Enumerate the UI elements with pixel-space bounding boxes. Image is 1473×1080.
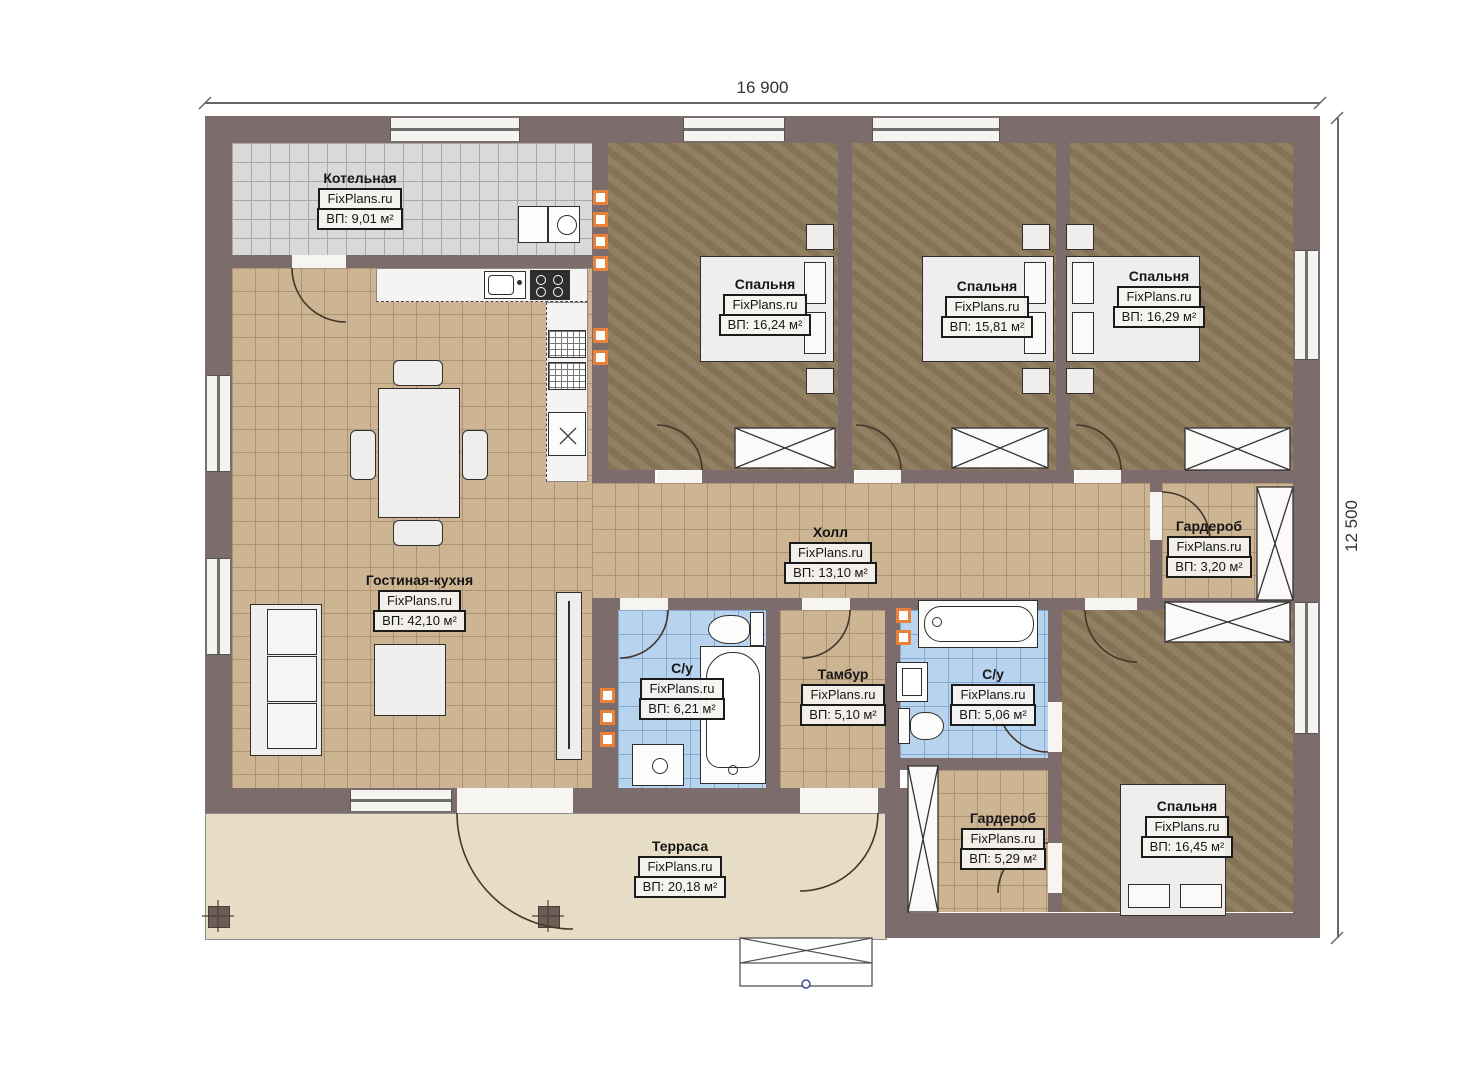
- watermark: FixPlans.ru: [961, 828, 1044, 850]
- wall-bathroom1-vestibule: [766, 598, 780, 790]
- wall-boiler-bottom-b: [345, 255, 592, 268]
- room-area: ВП: 5,10 м²: [800, 704, 885, 726]
- room-label-wardrobe2: Гардероб FixPlans.ru ВП: 5,29 м²: [942, 810, 1064, 870]
- watermark: FixPlans.ru: [1117, 286, 1200, 308]
- wall-hall-bottom-d: [1137, 598, 1293, 610]
- door-opening: [800, 788, 878, 813]
- watermark: FixPlans.ru: [789, 542, 872, 564]
- window: [207, 558, 230, 655]
- room-name: Котельная: [323, 170, 396, 186]
- watermark: FixPlans.ru: [801, 684, 884, 706]
- room-name: Гардероб: [970, 810, 1036, 826]
- door-opening: [292, 255, 346, 268]
- terrace-post: [538, 906, 560, 928]
- room-label-bedroom3: Спальня FixPlans.ru ВП: 16,29 м²: [1082, 268, 1236, 328]
- wall-hall-top-d: [1121, 470, 1293, 483]
- vent-marker-icon: [593, 190, 608, 205]
- dimension-line-right: [1337, 118, 1339, 938]
- sink-bowl: [902, 668, 922, 696]
- burner: [553, 287, 563, 297]
- room-label-vestibule: Тамбур FixPlans.ru ВП: 5,10 м²: [782, 666, 904, 726]
- tv-icon: [568, 601, 570, 749]
- pillow-icon: [1128, 884, 1170, 908]
- sofa-cushion: [267, 656, 317, 702]
- wall-terrace-right: [885, 788, 910, 938]
- pillow-icon: [1180, 884, 1222, 908]
- burner: [553, 275, 563, 285]
- room-label-boiler: Котельная FixPlans.ru ВП: 9,01 м²: [280, 170, 440, 230]
- watermark: FixPlans.ru: [638, 856, 721, 878]
- room-label-bedroom1: Спальня FixPlans.ru ВП: 16,24 м²: [688, 276, 842, 336]
- room-area: ВП: 15,81 м²: [941, 316, 1034, 338]
- vent-marker-icon: [600, 732, 615, 747]
- nightstand-icon: [1066, 224, 1094, 250]
- watermark: FixPlans.ru: [723, 294, 806, 316]
- nightstand-icon: [806, 368, 834, 394]
- nightstand-icon: [1022, 368, 1050, 394]
- watermark: FixPlans.ru: [318, 188, 401, 210]
- room-area: ВП: 5,29 м²: [960, 848, 1045, 870]
- wall-right: [1293, 116, 1320, 938]
- room-area: ВП: 13,10 м²: [784, 562, 877, 584]
- nightstand-icon: [1022, 224, 1050, 250]
- dimension-height-label: 12 500: [1342, 496, 1362, 556]
- toilet-tank: [750, 612, 764, 646]
- divider: [547, 207, 549, 242]
- room-area: ВП: 42,10 м²: [373, 610, 466, 632]
- boiler-unit-icon: [518, 206, 580, 243]
- room-name: Спальня: [957, 278, 1017, 294]
- vent-marker-icon: [896, 608, 911, 623]
- door-opening: [1076, 470, 1121, 483]
- room-label-wardrobe1: Гардероб FixPlans.ru ВП: 3,20 м²: [1150, 518, 1268, 578]
- dimension-line-top: [205, 102, 1320, 104]
- stove-icon: [530, 270, 570, 300]
- nightstand-icon: [1066, 368, 1094, 394]
- room-label-terrace: Терраса FixPlans.ru ВП: 20,18 м²: [600, 838, 760, 898]
- window: [1295, 602, 1318, 734]
- watermark: FixPlans.ru: [951, 684, 1034, 706]
- toilet-icon: [708, 615, 750, 644]
- watermark: FixPlans.ru: [1145, 816, 1228, 838]
- chair-icon: [462, 430, 488, 480]
- room-area: ВП: 16,24 м²: [719, 314, 812, 336]
- watermark: FixPlans.ru: [945, 296, 1028, 318]
- room-name: Спальня: [1129, 268, 1189, 284]
- room-label-bedroom4: Спальня FixPlans.ru ВП: 16,45 м²: [1110, 798, 1264, 858]
- window: [683, 118, 785, 141]
- room-label-hall: Холл FixPlans.ru ВП: 13,10 м²: [758, 524, 903, 584]
- room-name: С/у: [671, 660, 693, 676]
- room-name: Спальня: [735, 276, 795, 292]
- wall-hall-top-a: [592, 470, 655, 483]
- room-name: Спальня: [1157, 798, 1217, 814]
- vent-marker-icon: [593, 350, 608, 365]
- dimension-width-label: 16 900: [205, 78, 1320, 98]
- window: [390, 118, 520, 141]
- door-opening: [457, 788, 573, 813]
- door-opening: [657, 470, 702, 483]
- sink-bowl: [488, 275, 514, 295]
- vent-marker-icon: [600, 710, 615, 725]
- terrace-post: [208, 906, 230, 928]
- chair-icon: [393, 360, 443, 386]
- vent-marker-icon: [896, 630, 911, 645]
- watermark: FixPlans.ru: [640, 678, 723, 700]
- room-name: Холл: [813, 524, 848, 540]
- dining-table-icon: [378, 388, 460, 518]
- wall-bottom-right: [885, 913, 1320, 938]
- window: [207, 375, 230, 472]
- coffee-table-icon: [374, 644, 446, 716]
- room-label-bathroom2: С/у FixPlans.ru ВП: 5,06 м²: [934, 666, 1052, 726]
- room-name: Тамбур: [818, 666, 869, 682]
- room-label-living-kitchen: Гостиная-кухня FixPlans.ru ВП: 42,10 м²: [332, 572, 507, 632]
- room-name: Терраса: [652, 838, 708, 854]
- sofa-icon: [250, 604, 322, 756]
- drain: [728, 765, 738, 775]
- vent-marker-icon: [600, 688, 615, 703]
- vent-marker-icon: [593, 234, 608, 249]
- faucet: [517, 280, 522, 285]
- room-area: ВП: 3,20 м²: [1166, 556, 1251, 578]
- room-area: ВП: 9,01 м²: [317, 208, 402, 230]
- microwave-icon: [548, 362, 586, 390]
- door-opening: [620, 598, 668, 610]
- room-name: Гардероб: [1176, 518, 1242, 534]
- nightstand-icon: [806, 224, 834, 250]
- room-area: ВП: 6,21 м²: [639, 698, 724, 720]
- wall-boiler-bottom-a: [232, 255, 292, 268]
- bathtub-icon: [918, 600, 1038, 648]
- vent-marker-icon: [593, 212, 608, 227]
- room-name: Гостиная-кухня: [366, 572, 473, 588]
- burner: [536, 287, 546, 297]
- wall-bathroom2-bottom: [885, 758, 1048, 770]
- chair-icon: [393, 520, 443, 546]
- vent-marker-icon: [593, 328, 608, 343]
- chair-icon: [350, 430, 376, 480]
- floor-plan-canvas: 16 900 12 500: [0, 0, 1473, 1080]
- door-opening: [856, 470, 901, 483]
- door-opening: [802, 598, 850, 610]
- room-name: С/у: [982, 666, 1004, 682]
- sofa-cushion: [267, 703, 317, 749]
- window: [872, 118, 1000, 141]
- sofa-cushion: [267, 609, 317, 655]
- drain: [932, 617, 942, 627]
- room-area: ВП: 20,18 м²: [634, 876, 727, 898]
- burner: [536, 275, 546, 285]
- door-opening: [1085, 598, 1137, 610]
- room-area: ВП: 5,06 м²: [950, 704, 1035, 726]
- room-label-bathroom1: С/у FixPlans.ru ВП: 6,21 м²: [626, 660, 738, 720]
- watermark: FixPlans.ru: [378, 590, 461, 612]
- washer-door: [652, 758, 668, 774]
- kitchen-sink-icon: [484, 271, 526, 299]
- window: [350, 790, 452, 811]
- entry-steps-icon: [740, 938, 872, 988]
- wall-hall-top-c: [901, 470, 1074, 483]
- boiler-dial: [557, 215, 577, 235]
- window: [1295, 250, 1318, 360]
- room-area: ВП: 16,45 м²: [1141, 836, 1234, 858]
- washing-machine-icon: [632, 744, 684, 786]
- tv-stand-icon: [556, 592, 582, 760]
- room-label-bedroom2: Спальня FixPlans.ru ВП: 15,81 м²: [910, 278, 1064, 338]
- vent-marker-icon: [593, 256, 608, 271]
- room-area: ВП: 16,29 м²: [1113, 306, 1206, 328]
- dishwasher-icon: [548, 412, 586, 456]
- wall-hall-bottom-b: [668, 598, 802, 610]
- wall-hall-top-b: [702, 470, 854, 483]
- watermark: FixPlans.ru: [1167, 536, 1250, 558]
- oven-icon: [548, 330, 586, 358]
